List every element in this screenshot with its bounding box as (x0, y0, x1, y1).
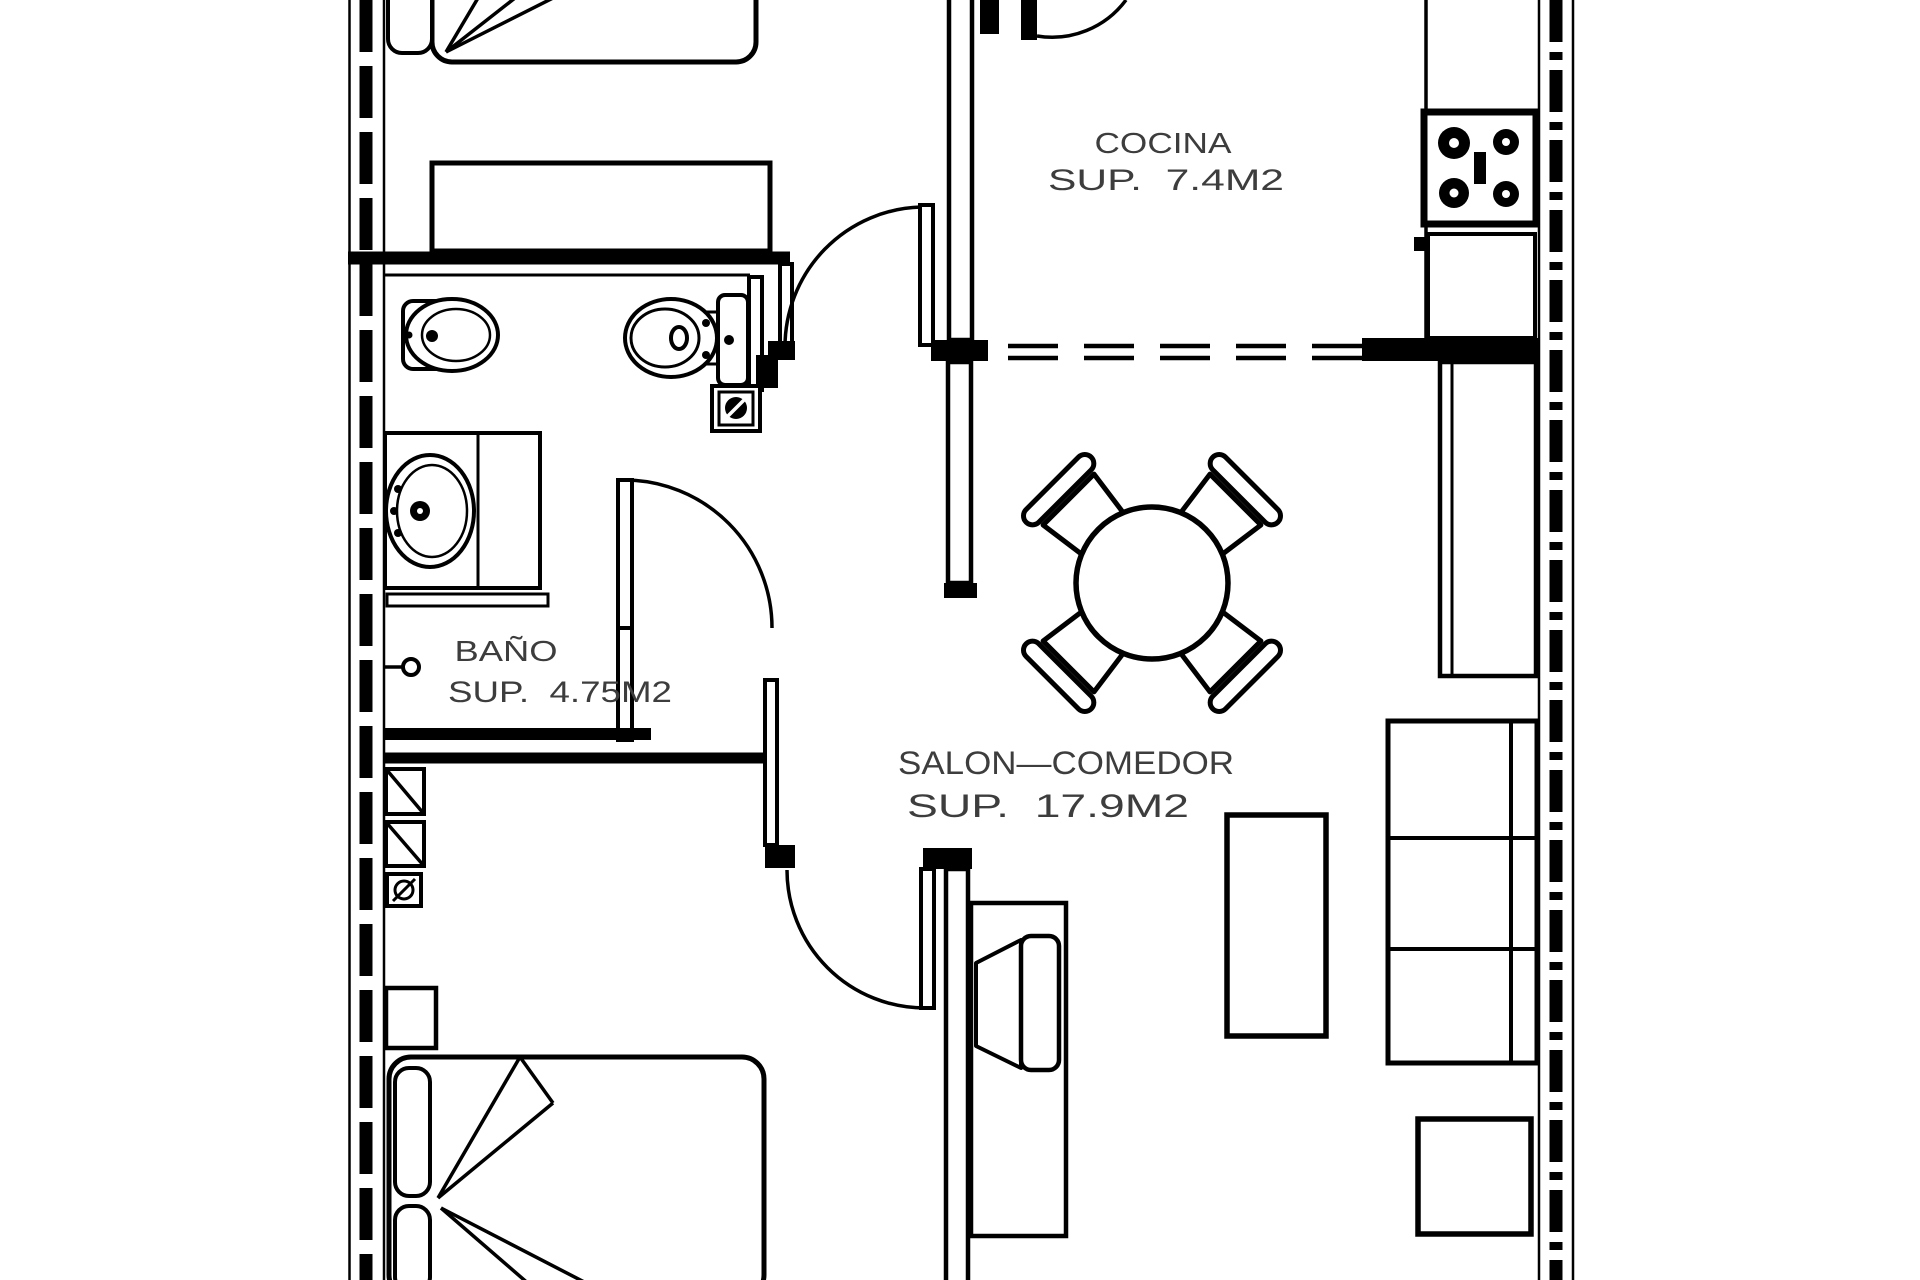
salon-comedor: SALON—COMEDOR SUP. 17.9M2 (898, 362, 1537, 1236)
kitchen-lower-cabinet (1428, 234, 1535, 338)
tall-cabinet-symbol (1440, 362, 1536, 676)
coffee-table-symbol (1227, 815, 1326, 1036)
salon-label: SALON—COMEDOR (898, 745, 1234, 781)
floor-plan-canvas: COCINA SUP. 7.4M2 (0, 0, 1920, 1280)
dining-table-symbol (1020, 451, 1284, 715)
single-bed-symbol (388, 0, 756, 62)
door-bathroom (618, 480, 772, 628)
tv-symbol (976, 940, 1021, 1068)
washbasin-symbol (385, 433, 540, 588)
stove-symbol (1424, 112, 1536, 224)
nightstand-symbol (386, 988, 436, 1048)
bathroom-label: BAÑO (455, 634, 558, 668)
tv-cabinet-symbol (971, 903, 1066, 1236)
double-bed-symbol (389, 1057, 764, 1280)
kitchen-area-label: SUP. 7.4M2 (1048, 164, 1284, 197)
sofa-symbol (1388, 721, 1537, 1063)
closet-module-symbol (386, 769, 424, 906)
door-bedroom-2 (787, 869, 934, 1008)
floor-drain-symbol (712, 386, 760, 431)
shelf-symbol (387, 594, 548, 606)
kitchen-label: COCINA (1095, 128, 1233, 160)
exterior-wall-left (350, 0, 385, 1280)
bathroom-area-label: SUP. 4.75M2 (448, 676, 672, 709)
side-table-symbol (1418, 1119, 1531, 1234)
bedroom-1 (388, 0, 770, 251)
bidet-symbol (403, 299, 498, 371)
salon-area-label: SUP. 17.9M2 (907, 788, 1189, 824)
exterior-wall-right (1539, 0, 1573, 1280)
bedroom-2 (386, 769, 764, 1280)
door-kitchen (980, 0, 1126, 40)
kitchen: COCINA SUP. 7.4M2 (1048, 0, 1536, 338)
dresser-symbol (432, 163, 770, 251)
switch-symbol (383, 659, 419, 675)
door-bedroom-1 (785, 205, 933, 347)
toilet-symbol (625, 295, 748, 385)
floor-plan-drawing: COCINA SUP. 7.4M2 (0, 0, 1920, 1280)
